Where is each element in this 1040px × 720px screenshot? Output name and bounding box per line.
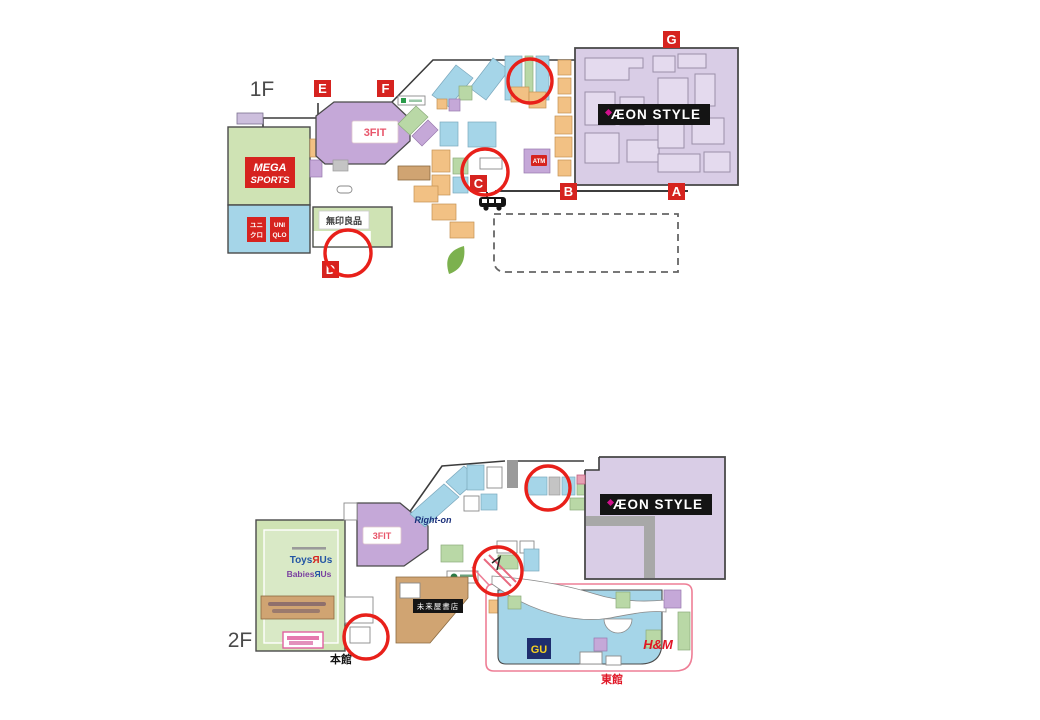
toysrus-building-2f: ToysЯUs BabiesЯUs bbox=[256, 520, 373, 651]
small-annex-block bbox=[237, 113, 263, 124]
miraiya-logo: 未来屋書店 bbox=[417, 601, 460, 611]
east-wing-2f: GU H&M bbox=[472, 567, 692, 671]
svg-text:MEGA: MEGA bbox=[254, 162, 287, 174]
gu-logo: GU bbox=[527, 638, 551, 659]
uniqlo-logo-jp: ユニ クロ bbox=[247, 217, 266, 242]
floor-1-map: 1F MEGA SPORTS ユニ クロ UNI QLO bbox=[228, 31, 738, 278]
svg-text:A: A bbox=[672, 184, 682, 199]
escalator-icon bbox=[337, 186, 352, 193]
hm-logo: H&M bbox=[643, 637, 674, 652]
garden-leaf bbox=[447, 246, 464, 274]
bus-stop-icon bbox=[479, 197, 506, 211]
parking-lot-dashed bbox=[494, 214, 678, 272]
svg-text:C: C bbox=[474, 176, 484, 191]
mall-floor-map: 1F MEGA SPORTS ユニ クロ UNI QLO bbox=[0, 0, 1040, 720]
svg-text:E: E bbox=[318, 81, 327, 96]
atm-icon: ATM bbox=[531, 155, 547, 166]
toysrus-logo: ToysЯUs bbox=[290, 555, 333, 566]
svg-text:G: G bbox=[666, 32, 676, 47]
aeon-style-building-1f: ÆON STYLE bbox=[575, 48, 738, 185]
svg-text:ATM: ATM bbox=[533, 159, 546, 165]
svg-text:ÆON STYLE: ÆON STYLE bbox=[611, 107, 701, 122]
svg-text:GU: GU bbox=[531, 644, 548, 656]
floor-1-label: 1F bbox=[250, 78, 275, 101]
marker-e[interactable]: E bbox=[314, 80, 331, 97]
west-anchor-building-1f: MEGA SPORTS ユニ クロ UNI QLO bbox=[228, 113, 322, 253]
right-on-logo: Right-on bbox=[415, 515, 452, 525]
svg-text:QLO: QLO bbox=[272, 232, 286, 239]
floor-map-svg: 1F MEGA SPORTS ユニ クロ UNI QLO bbox=[0, 0, 1040, 720]
svg-text:F: F bbox=[382, 81, 390, 96]
floor-2-map: 2F ToysЯUs BabiesЯUs 本館 3FIT bbox=[228, 456, 725, 686]
escalator-bar bbox=[507, 460, 518, 488]
svg-text:3FIT: 3FIT bbox=[373, 531, 392, 541]
mega-sports-logo: MEGA SPORTS bbox=[245, 157, 295, 188]
marker-g[interactable]: G bbox=[663, 31, 680, 48]
marker-f[interactable]: F bbox=[377, 80, 394, 97]
entrance-guide-line bbox=[487, 191, 688, 197]
floor-2-label: 2F bbox=[228, 629, 253, 652]
svg-text:ÆON STYLE: ÆON STYLE bbox=[613, 497, 703, 512]
east-wing-label: 東館 bbox=[601, 672, 623, 686]
marker-a[interactable]: A bbox=[668, 183, 685, 200]
tenant-strip bbox=[261, 596, 334, 619]
miraiya-area: 未来屋書店 bbox=[396, 577, 506, 643]
corridor-gray bbox=[586, 516, 654, 526]
leaf-icon bbox=[401, 98, 406, 103]
central-shops-1f bbox=[398, 56, 572, 238]
uniqlo-area bbox=[228, 205, 310, 253]
aeon-style-building-2f: ÆON STYLE bbox=[577, 456, 725, 579]
svg-text:クロ: クロ bbox=[250, 230, 263, 239]
aeon-style-banner-1f: ÆON STYLE bbox=[598, 104, 710, 125]
muji-logo: 無印良品 bbox=[326, 215, 362, 226]
svg-text:ユニ: ユニ bbox=[250, 222, 263, 229]
svg-text:UNI: UNI bbox=[274, 222, 285, 229]
main-wing-label: 本館 bbox=[330, 652, 352, 666]
svg-text:B: B bbox=[564, 184, 573, 199]
muji-area: 無印良品 bbox=[313, 207, 392, 247]
babiesrus-logo: BabiesЯUs bbox=[287, 569, 332, 579]
uniqlo-logo-en: UNI QLO bbox=[270, 217, 289, 242]
fit-gym-building-1f: 3FIT bbox=[316, 102, 410, 164]
svg-text:SPORTS: SPORTS bbox=[251, 175, 291, 186]
aeon-style-banner-2f: ÆON STYLE bbox=[600, 494, 712, 515]
marker-b[interactable]: B bbox=[560, 183, 577, 200]
fit-logo: 3FIT bbox=[364, 127, 387, 139]
